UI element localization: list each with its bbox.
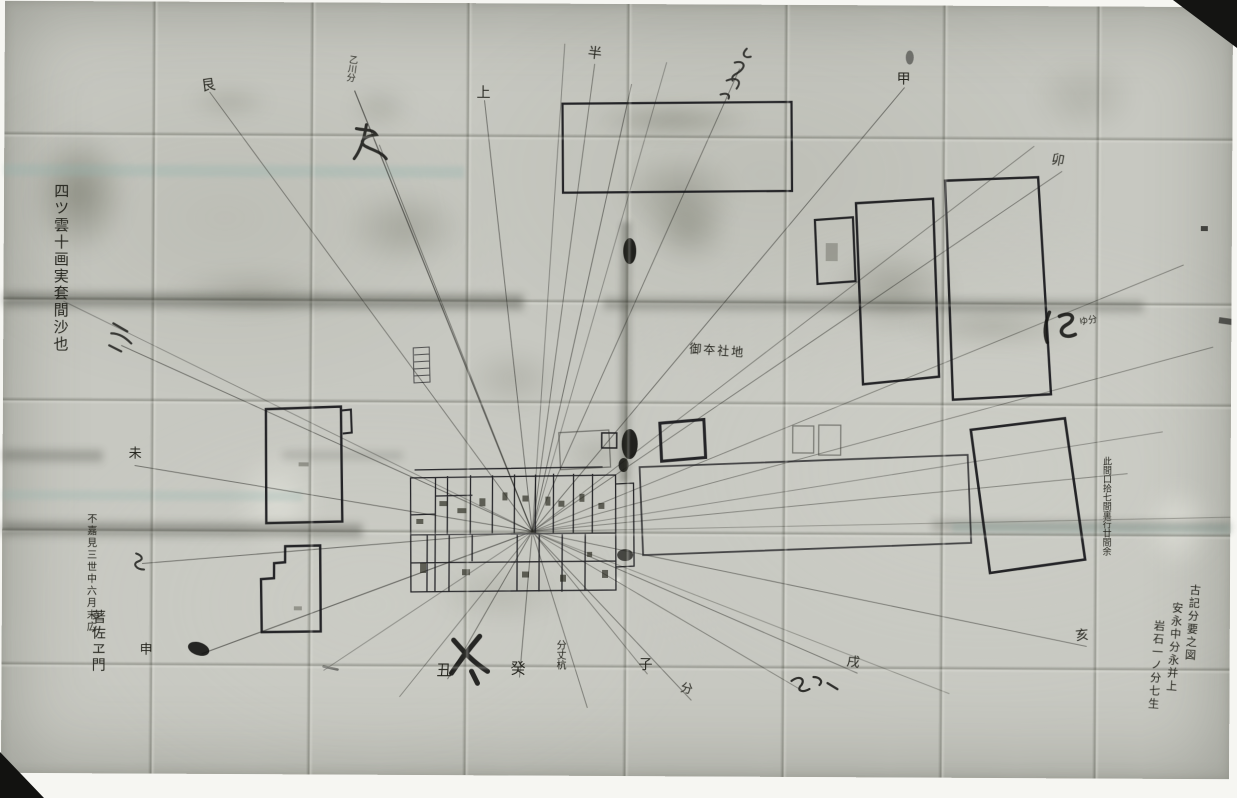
photo-corner-dark	[1173, 0, 1237, 48]
compass-label: 上	[477, 85, 491, 101]
legend-ladder-box	[413, 347, 430, 383]
compass-label: 丑	[436, 662, 451, 679]
fold-shadow	[3, 289, 523, 314]
compass-label: 未	[129, 447, 142, 462]
compass-label: 亥	[1075, 629, 1089, 645]
compass-label: 卯	[1050, 153, 1065, 170]
brush-mark-top-right	[721, 49, 751, 99]
parcel-right-medium	[855, 198, 940, 384]
parcel-right-large	[944, 177, 1052, 401]
calligraphy-left-column: 四ツ雲十画実套間沙也	[51, 183, 69, 355]
compass-label: 子	[639, 657, 653, 673]
parcel-left-notch	[341, 410, 352, 434]
parcel-top-center	[562, 101, 792, 194]
brush-mark-right-bold	[1045, 312, 1075, 342]
parcel-outlines	[261, 99, 1088, 636]
brush-mark-bottom-diagonal	[791, 677, 837, 691]
fold-shadow	[618, 222, 633, 482]
fold-shadow	[932, 518, 1230, 536]
brush-mark-left-diagonal	[109, 323, 131, 351]
central-building-plan	[410, 347, 635, 593]
compass-label: 半	[587, 45, 603, 63]
compass-label: 戌	[846, 655, 861, 672]
compass-label: 申	[140, 644, 153, 659]
note-right-small-column: 此間口拾七間裏行廿間余	[1100, 457, 1111, 575]
fold-shadow	[2, 519, 362, 541]
brush-mark-left-small	[135, 553, 144, 569]
compass-label: 艮	[201, 77, 217, 95]
photo-corner-dark	[0, 752, 44, 798]
calligraphy-bottom-left-2: 著佐ヱ門	[89, 609, 106, 721]
compass-label: 甲	[897, 71, 911, 87]
fold-shadow	[283, 449, 403, 462]
brush-mark-top	[354, 125, 386, 159]
map-paper: 艮 上 半 甲 卯 未 申 丑 癸 子 分 戌 亥 四ツ雲十画実套間沙也 不嘉見…	[1, 1, 1233, 779]
fold-shadow	[3, 447, 103, 466]
compass-label: 癸	[510, 660, 525, 677]
parcel-bottom-right	[970, 418, 1086, 574]
photograph: 艮 上 半 甲 卯 未 申 丑 癸 子 分 戌 亥 四ツ雲十画実套間沙也 不嘉見…	[0, 0, 1237, 798]
fold-shadow	[603, 295, 1143, 316]
note-bottom-column: 分丈杭	[553, 640, 565, 712]
